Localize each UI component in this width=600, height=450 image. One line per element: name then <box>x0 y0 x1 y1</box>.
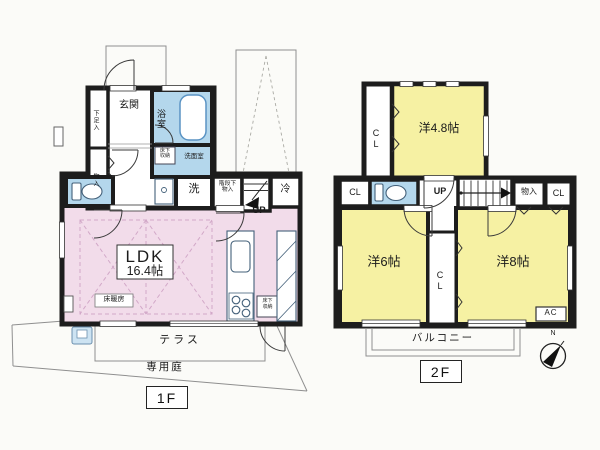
entrance-porch <box>106 46 166 90</box>
floor-heating-label-box <box>95 294 133 307</box>
bathtub-icon <box>180 95 206 140</box>
fridge-space <box>271 177 300 207</box>
underfloor-storage-box <box>155 147 175 164</box>
floor1-tag: 1F <box>146 386 188 409</box>
stairs-2f <box>458 178 512 208</box>
understair-storage <box>213 177 242 208</box>
kitchen-sink-icon <box>231 241 250 272</box>
underfloor-storage-kitchen-box <box>257 296 278 317</box>
kitchen-counter <box>227 231 254 321</box>
compass-icon <box>541 341 566 369</box>
floor2-tag: 2F <box>420 360 462 383</box>
outdoor-tap-icon <box>72 327 92 344</box>
ldk-label-box <box>117 245 173 279</box>
ac-unit-box <box>536 307 566 321</box>
balcony-outline <box>366 328 520 356</box>
storage-2f <box>514 182 544 206</box>
floorplan-page: 玄関 下足入 物入 浴室 床下収納 洗面室 洗 階段下物入 冷 UP LDK 1… <box>0 0 600 450</box>
wall-niche <box>64 296 73 312</box>
closet-right-2f <box>546 182 571 206</box>
closet-center-2f <box>428 232 456 324</box>
floor1-plan <box>12 46 307 391</box>
site-boundary-lines <box>12 321 307 391</box>
stairs-1f <box>242 177 270 211</box>
pantry-shelf <box>277 231 296 321</box>
room-6 <box>340 208 428 324</box>
toilet-icon-1f <box>72 183 102 200</box>
terrace-area <box>95 324 265 361</box>
room-48 <box>392 84 486 178</box>
toilet-icon-2f <box>375 184 406 201</box>
floorplan-drawing <box>0 0 600 450</box>
vanity-icon <box>155 179 173 204</box>
floor2-plan <box>336 82 574 369</box>
closet-left-2f <box>340 180 370 206</box>
room-laundry <box>176 177 212 208</box>
parking-space <box>236 50 296 184</box>
meter-box <box>54 127 63 146</box>
